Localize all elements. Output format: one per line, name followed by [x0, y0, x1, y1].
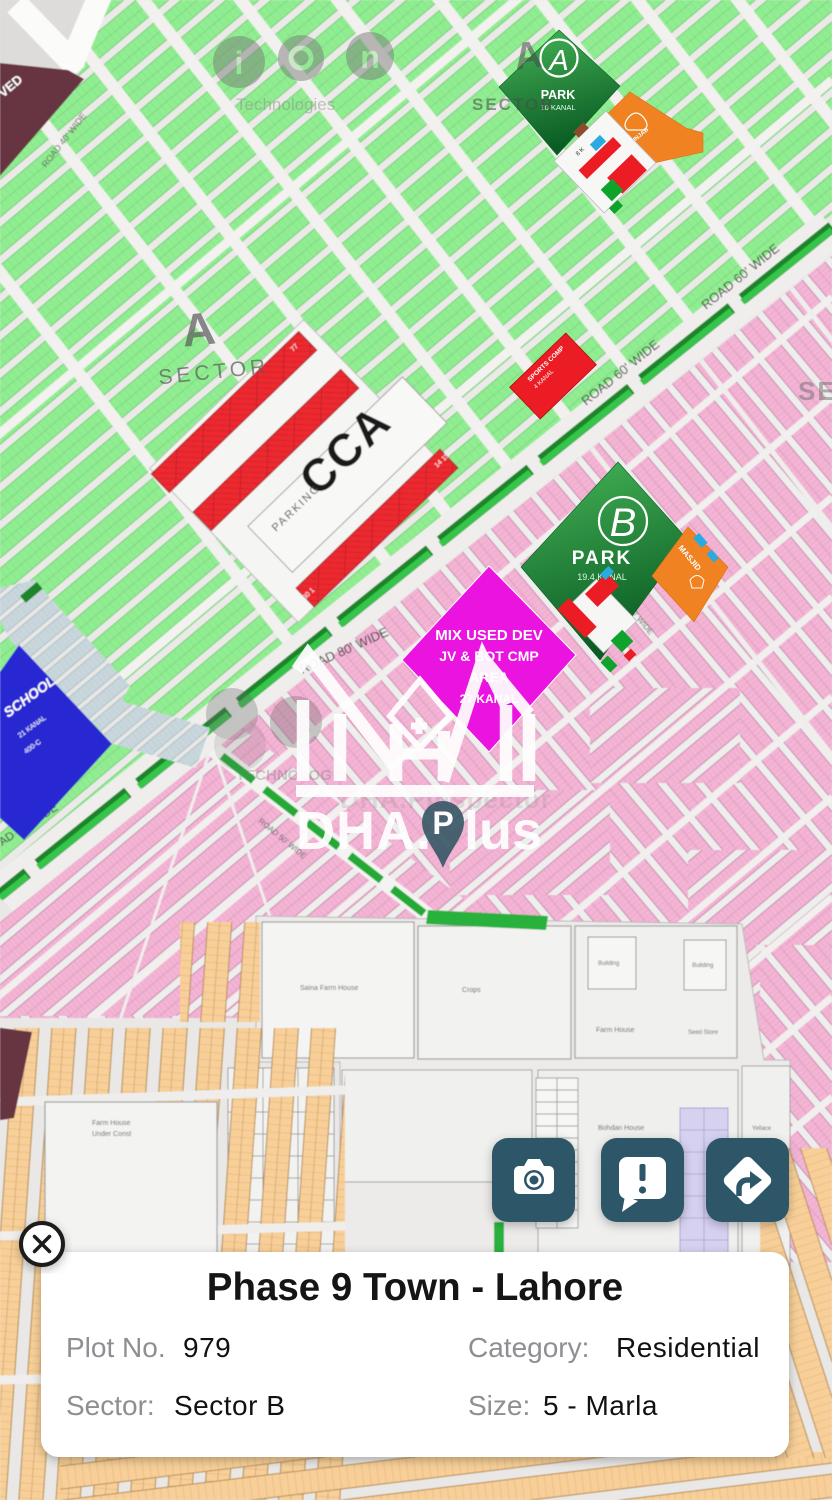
svg-text:SECTOR: SECTOR [472, 95, 555, 114]
svg-text:Plot No.: Plot No. [66, 1332, 166, 1363]
svg-text:MIX USED DEV: MIX USED DEV [435, 627, 543, 644]
svg-text:Category:: Category: [468, 1332, 589, 1363]
svg-text:i: i [235, 45, 244, 81]
svg-text:B: B [610, 501, 637, 545]
svg-text:Size:: Size: [468, 1390, 530, 1421]
svg-text:DHA.: DHA. [296, 801, 432, 861]
svg-text:Sector:: Sector: [66, 1390, 155, 1421]
svg-text:A: A [547, 45, 568, 77]
svg-text:A: A [179, 302, 217, 357]
svg-text:PARK: PARK [572, 548, 632, 569]
svg-text:5 - Marla: 5 - Marla [543, 1390, 658, 1421]
svg-text:SE: SE [798, 376, 832, 406]
svg-text:P: P [432, 805, 453, 841]
svg-text:Sector B: Sector B [174, 1390, 285, 1421]
svg-text:Technologies: Technologies [236, 95, 335, 114]
svg-text:Phase 9 Town - Lahore: Phase 9 Town - Lahore [207, 1266, 623, 1309]
svg-text:Residential: Residential [616, 1332, 760, 1363]
svg-text:TECHNOLOG: TECHNOLOG [236, 767, 332, 784]
svg-text:A: A [511, 34, 544, 79]
svg-text:979: 979 [183, 1332, 231, 1363]
svg-text:lus: lus [464, 801, 542, 861]
svg-text:n: n [360, 39, 380, 75]
